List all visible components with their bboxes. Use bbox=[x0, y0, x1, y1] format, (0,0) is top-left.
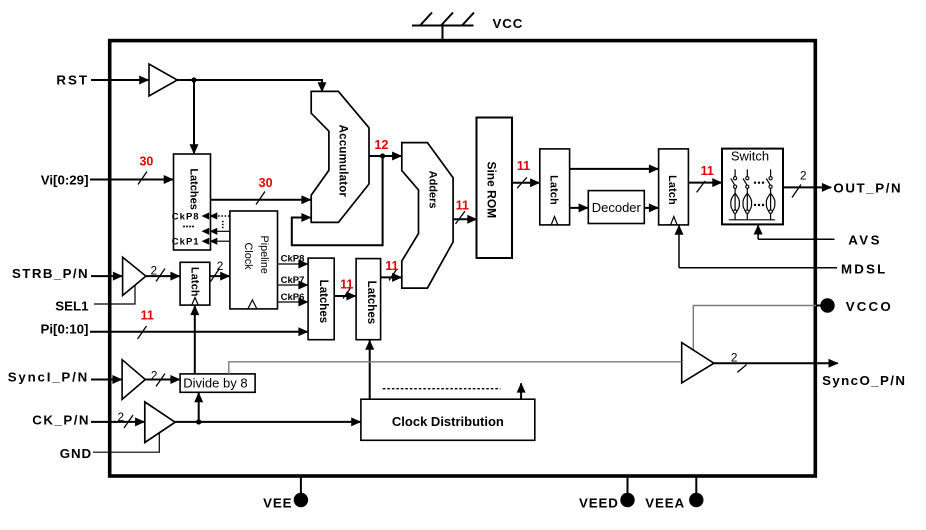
svg-text:CkP8: CkP8 bbox=[281, 254, 305, 265]
svg-text:11: 11 bbox=[517, 159, 530, 173]
svg-text:Latch: Latch bbox=[547, 175, 559, 205]
svg-text:30: 30 bbox=[139, 155, 153, 169]
svg-text:STRB_P/N: STRB_P/N bbox=[12, 266, 89, 281]
svg-text:VEED: VEED bbox=[579, 496, 619, 511]
svg-text:Pipeline: Pipeline bbox=[258, 235, 270, 273]
svg-text:2: 2 bbox=[731, 350, 738, 364]
svg-text:VEE: VEE bbox=[263, 496, 292, 511]
svg-text:Latches: Latches bbox=[317, 280, 329, 323]
svg-text:CkP8: CkP8 bbox=[172, 211, 200, 222]
svg-text:OUT_P/N: OUT_P/N bbox=[833, 181, 902, 196]
svg-text:11: 11 bbox=[385, 259, 398, 273]
svg-text:CkP1: CkP1 bbox=[172, 237, 200, 248]
svg-text:2: 2 bbox=[800, 168, 807, 182]
svg-text:Pi[0:10]: Pi[0:10] bbox=[40, 322, 88, 337]
svg-text:Adders: Adders bbox=[426, 171, 438, 209]
svg-text:GND: GND bbox=[60, 446, 92, 461]
svg-text:Vi[0:29]: Vi[0:29] bbox=[41, 173, 89, 188]
svg-text:MDSL: MDSL bbox=[841, 262, 887, 277]
svg-text:CK_P/N: CK_P/N bbox=[32, 413, 90, 428]
svg-text:2: 2 bbox=[217, 259, 224, 273]
svg-text:VCC: VCC bbox=[493, 16, 524, 31]
svg-text:2: 2 bbox=[118, 410, 125, 424]
svg-text:SEL1: SEL1 bbox=[55, 299, 89, 314]
svg-text:VEEA: VEEA bbox=[645, 496, 685, 511]
svg-text:Decoder: Decoder bbox=[592, 200, 642, 215]
svg-text:11: 11 bbox=[340, 278, 353, 292]
svg-text:30: 30 bbox=[259, 176, 273, 190]
svg-text:12: 12 bbox=[375, 138, 389, 152]
svg-text:AVS: AVS bbox=[848, 233, 882, 248]
svg-text:SyncO_P/N: SyncO_P/N bbox=[822, 373, 906, 388]
svg-text:Clock: Clock bbox=[242, 243, 254, 271]
svg-text:Latch: Latch bbox=[666, 175, 678, 205]
svg-text:RST: RST bbox=[56, 73, 89, 88]
svg-text:11: 11 bbox=[141, 309, 154, 323]
svg-text:VCCO: VCCO bbox=[846, 299, 893, 314]
svg-text:Clock Distribution: Clock Distribution bbox=[392, 414, 504, 429]
svg-text:Latches: Latches bbox=[187, 168, 199, 210]
svg-text:Latches: Latches bbox=[365, 281, 377, 324]
svg-text:Sine ROM: Sine ROM bbox=[484, 161, 498, 218]
svg-text:2: 2 bbox=[151, 264, 158, 278]
svg-text:Divide by 8: Divide by 8 bbox=[183, 375, 247, 390]
svg-text:Latch: Latch bbox=[188, 267, 200, 297]
svg-text:Switch: Switch bbox=[731, 149, 769, 164]
svg-text:Accumulator: Accumulator bbox=[336, 125, 348, 198]
svg-text:2: 2 bbox=[151, 369, 158, 383]
svg-text:11: 11 bbox=[701, 164, 714, 178]
svg-text:SyncI_P/N: SyncI_P/N bbox=[8, 370, 89, 385]
svg-text:11: 11 bbox=[456, 198, 469, 212]
